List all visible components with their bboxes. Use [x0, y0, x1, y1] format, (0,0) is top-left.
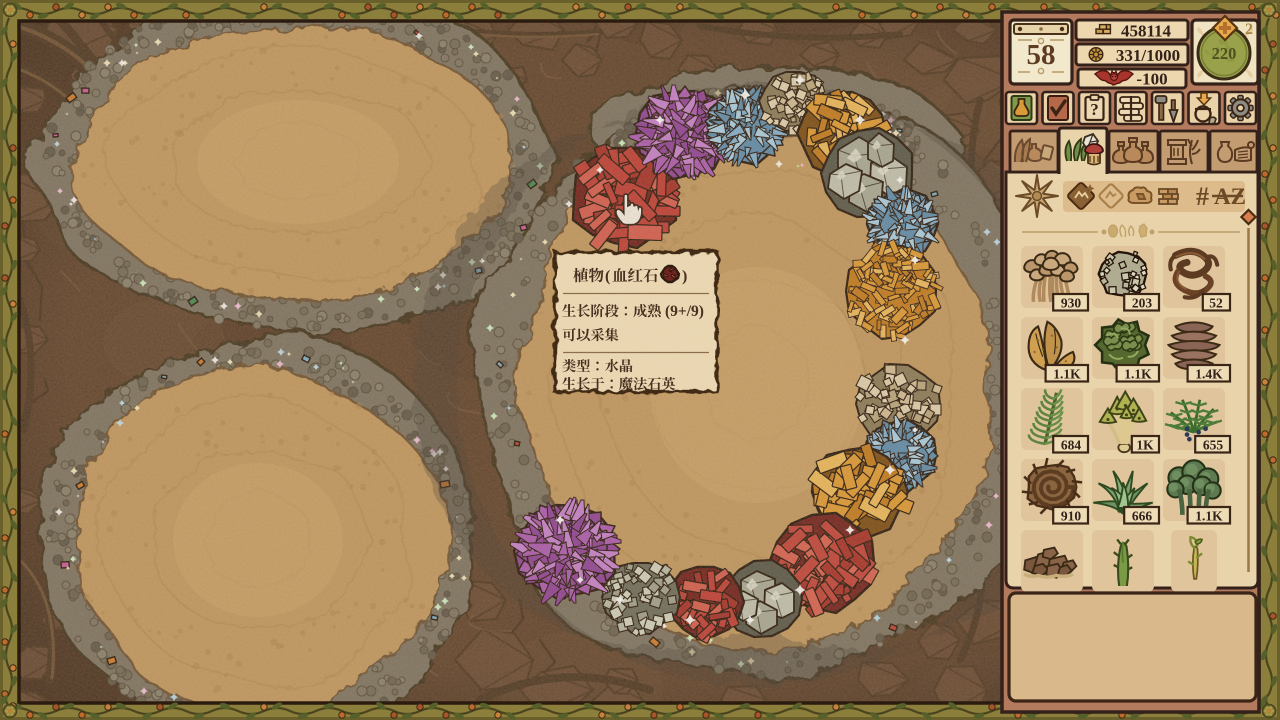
- svg-text:1.4K: 1.4K: [1195, 367, 1223, 382]
- svg-text:684: 684: [1061, 438, 1082, 453]
- svg-text:1.1K: 1.1K: [1195, 509, 1223, 524]
- svg-text:?: ?: [1090, 100, 1099, 119]
- svg-text:1K: 1K: [1136, 438, 1154, 453]
- svg-text:-100: -100: [1136, 70, 1167, 89]
- svg-text:458114: 458114: [1121, 22, 1172, 41]
- svg-text:52: 52: [1209, 296, 1223, 311]
- svg-text:203: 203: [1132, 296, 1153, 311]
- svg-text:58: 58: [1027, 39, 1056, 71]
- svg-text:2: 2: [1245, 21, 1253, 38]
- svg-text:655: 655: [1203, 438, 1224, 453]
- svg-text:#: #: [1196, 182, 1209, 211]
- svg-text:666: 666: [1132, 509, 1153, 524]
- svg-text:331/1000: 331/1000: [1116, 46, 1180, 65]
- svg-text:1.1K: 1.1K: [1124, 367, 1152, 382]
- svg-text:930: 930: [1061, 296, 1082, 311]
- svg-text:910: 910: [1061, 509, 1082, 524]
- svg-text:220: 220: [1212, 44, 1237, 63]
- svg-text:1.1K: 1.1K: [1053, 367, 1081, 382]
